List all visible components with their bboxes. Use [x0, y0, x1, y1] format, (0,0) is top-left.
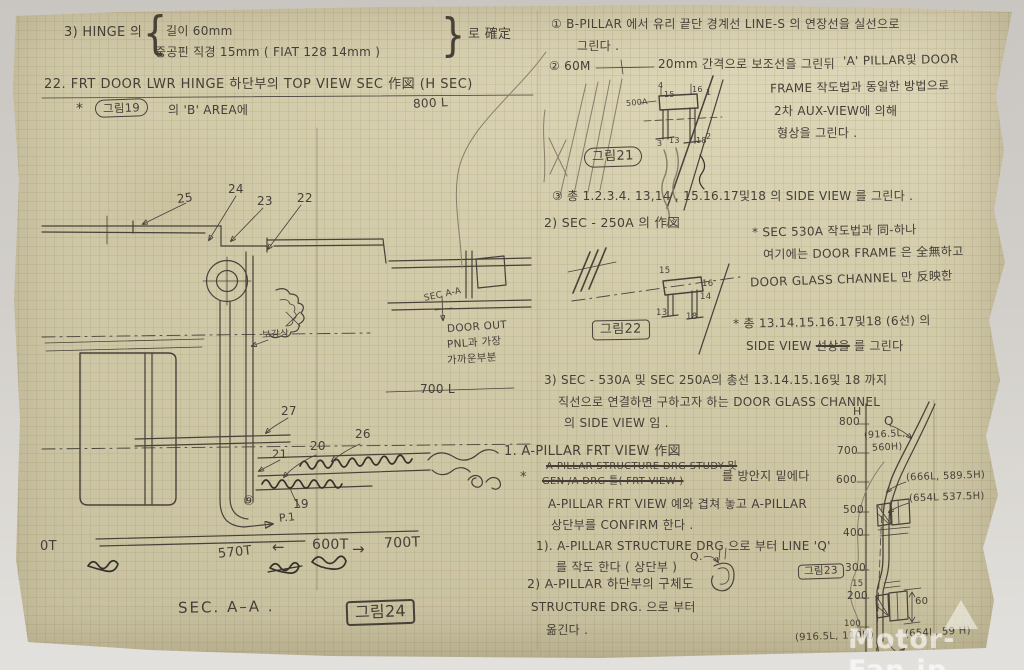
note-hinge-confirm: 로 確定: [468, 28, 511, 42]
right-note-2a: ② 60M: [549, 60, 591, 73]
scale-0T: 0T: [40, 540, 57, 554]
part-label-27: 27: [281, 405, 297, 418]
part-label-19: 19: [293, 498, 309, 511]
label-700L: 700 L: [420, 383, 455, 396]
apillar-sub1a: 1). A-PILLAR STRUCTURE DRG 으로 부터 LINE 'Q…: [536, 540, 831, 553]
sk250-18: 18: [686, 313, 697, 322]
line-q-label: Q: [884, 415, 894, 428]
step3-line3: 의 SIDE VIEW 임 .: [564, 417, 669, 430]
sk250-15: 15: [659, 267, 670, 276]
graph-paper-sheet: 3) HINGE 의 { 길이 60mm 중공핀 직경 15mm ( FIAT …: [0, 0, 1024, 670]
part-label-21: 21: [272, 448, 287, 460]
coord-916-560b: 560H): [872, 442, 903, 454]
section-note: 보강상: [262, 329, 290, 340]
note-hinge-length: 길이 60mm: [166, 25, 233, 38]
sideview-note-struck: 선상을: [816, 339, 850, 353]
axis-200: 200: [847, 591, 868, 602]
watermark: Motor-Fan.jp: [848, 624, 1024, 670]
sk250-13: 13: [656, 309, 667, 318]
part-label-26: 26: [355, 428, 371, 441]
part-label-25: 25: [176, 191, 193, 206]
part-label-22: 22: [297, 192, 313, 205]
part-label-23: 23: [257, 195, 273, 208]
scale-700T: 700T: [384, 535, 421, 551]
sideview-note-b1: SIDE VIEW: [746, 339, 816, 353]
axis-500: 500: [843, 505, 864, 516]
sk530-1: 1: [706, 89, 711, 97]
apillar-struck-1: A-PILLAR STRUCTURE DRG STUDY 및: [546, 462, 737, 473]
notebook-photo: 3) HINGE 의 { 길이 60mm 중공핀 직경 15mm ( FIAT …: [0, 0, 1024, 670]
right-note-1b: 그린다 .: [577, 40, 619, 53]
figure-ref-23: 그림23: [798, 563, 844, 580]
right-note-1a: ① B-PILLAR 에서 유리 끝단 경계선 LINE-S 의 연장선을 실선…: [551, 18, 900, 31]
item22-area: 의 'B' AREA에: [168, 104, 248, 117]
apillar-sub1b: 를 작도 한다 ( 상단부 ): [556, 561, 677, 574]
arrow-right-glyph: →: [352, 542, 365, 558]
sk530-2: 2: [706, 133, 711, 141]
axis-600: 600: [836, 475, 857, 486]
figure-ref-19: 그림19: [95, 98, 149, 118]
note-hinge-pin: 중공핀 직경 15mm ( FIAT 128 14mm ): [155, 46, 380, 59]
axis-400: 400: [843, 528, 864, 539]
axis-300: 300: [845, 563, 866, 574]
sk530-15: 15: [664, 91, 675, 99]
step3-line2: 직선으로 연결하면 구하고자 하는 DOOR GLASS CHANNEL: [558, 396, 880, 409]
dim-60: 60: [915, 597, 928, 608]
label-800L: 800 L: [413, 96, 449, 110]
apillar-sub2c: 옮긴다 .: [546, 624, 588, 637]
q-sketch-label: Q.: [690, 551, 703, 563]
hand-drawn-sketch-strokes: [0, 0, 1024, 670]
apillar-head: 1. A-PILLAR FRT VIEW 作図: [504, 445, 681, 459]
coord-916-560a: (916.5L,: [864, 429, 906, 441]
item22-star: *: [76, 102, 83, 117]
figure-ref-22: 그림22: [592, 319, 650, 340]
sideview-note-b2: 를 그린다: [850, 339, 904, 353]
apillar-sub2b: STRUCTURE DRG. 으로 부터: [531, 601, 696, 614]
sec250-head: 2) SEC - 250A 의 作図: [544, 216, 680, 229]
dim-15: 15: [852, 580, 863, 589]
scale-600T: 600T: [312, 538, 348, 553]
sec250-note-1: * SEC 530A 작도법과 同-하나: [752, 224, 917, 239]
right-note-2d: FRAME 작도법과 동일한 방법으로: [770, 79, 950, 95]
sk530-3: 3: [657, 140, 662, 148]
step3-line1: 3) SEC - 530A 및 SEC 250A의 총선 13.14.15.16…: [544, 374, 887, 387]
part-label-24: 24: [228, 183, 244, 196]
apillar-line3: 상단부를 CONFIRM 한다 .: [551, 519, 694, 532]
figure-ref-21: 그림21: [584, 146, 642, 168]
sk530-16: 16: [692, 86, 703, 94]
right-note-2e: 2차 AUX-VIEW에 의해: [774, 105, 897, 118]
right-note-3: ③ 총 1.2.3.4. 13,14 , 15.16.17및18 의 SIDE …: [552, 190, 913, 203]
right-note-2c: 'A' PILLAR및 DOOR: [843, 53, 959, 68]
figure-ref-24: 그림24: [346, 599, 416, 626]
sk530-4: 4: [658, 82, 663, 90]
apillar-line2: A-PILLAR FRT VIEW 예와 겹쳐 놓고 A-PILLAR: [548, 498, 807, 511]
apillar-sub2a: 2) A-PILLAR 하단부의 구체도: [527, 577, 694, 590]
axis-800: 800: [839, 417, 860, 428]
section-caption: SEC. A–A .: [178, 599, 275, 616]
note-hinge-head: 3) HINGE 의: [64, 26, 142, 40]
brace-close: }: [441, 12, 465, 60]
arrow-left-glyph: ←: [272, 540, 285, 556]
sk250-14: 14: [700, 293, 711, 302]
apillar-star: *: [520, 471, 527, 485]
right-note-2f: 형상을 그린다 .: [777, 127, 857, 140]
axis-700: 700: [837, 446, 858, 457]
sideview-note-b: SIDE VIEW 선상을 를 그린다: [746, 340, 903, 353]
apillar-rest: 를 방안지 밑에다: [722, 470, 810, 483]
part-label-20: 20: [310, 440, 326, 453]
sk530-13: 13: [669, 137, 680, 145]
sk250-16: 16: [702, 280, 713, 289]
circled-number: ⑨: [243, 495, 255, 509]
right-note-2b: 20mm 간격으로 보조선을 그린뒤: [658, 58, 835, 71]
apillar-struck-2: GEN /A DRG 틀( FRT VIEW ): [542, 477, 684, 488]
item22-title: 22. FRT DOOR LWR HINGE 하단부의 TOP VIEW SEC…: [44, 78, 473, 92]
page-ref: P.1: [278, 511, 295, 524]
